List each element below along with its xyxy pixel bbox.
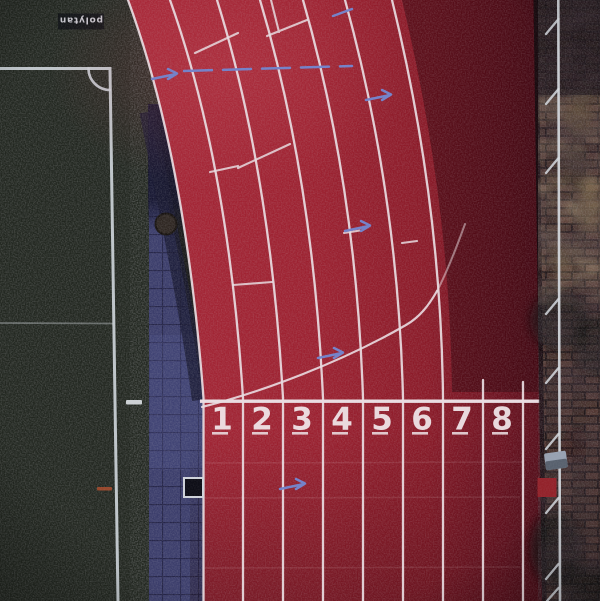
vignette [0, 0, 600, 601]
aerial-photo-canvas: polytan [0, 0, 600, 601]
aerial-photo: polytan [0, 0, 600, 601]
